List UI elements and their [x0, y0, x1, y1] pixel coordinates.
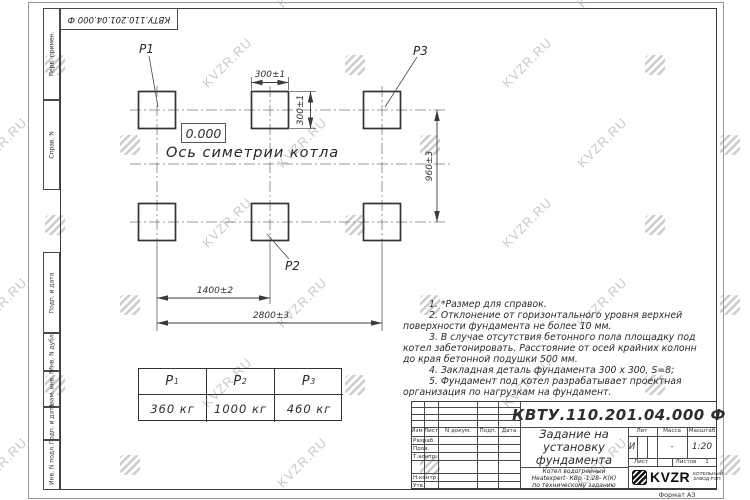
tb-col-ndokum: N докум.: [445, 428, 471, 434]
pad-label-p1: P1: [139, 42, 154, 56]
tb-lit-label: Лит: [636, 428, 647, 434]
kvzr-logo-caption: КОТЕЛЬНЫЙ ЗАВОД РЭП: [693, 472, 723, 483]
tb-row-prov: Пров.: [413, 446, 429, 452]
tb-masshtab-label: Масштаб: [689, 428, 716, 434]
tb-col-izm: Изм: [411, 428, 422, 434]
tb-doc-title: Задание на установку фундамента: [521, 428, 627, 466]
loads-value-p2: 1000 кг: [207, 395, 275, 422]
dim-total-span: 2800±3: [253, 311, 289, 321]
tb-doc-number: КВТУ.110.201.04.000 Ф: [521, 402, 717, 427]
technical-drawing-sheet: KVZR.RUKVZR.RUKVZR.RUKVZR.RUKVZR.RUKVZR.…: [0, 0, 750, 500]
tb-subtitle-line: по техническому заданию: [521, 482, 627, 489]
note-line: 1. *Размер для справок.: [403, 299, 701, 310]
note-line: 2. Отклонение от горизонтального уровня …: [403, 310, 701, 332]
loads-header-p3: P3: [275, 369, 343, 395]
foundation-pads: [139, 92, 401, 241]
tb-listov-label: Листов: [676, 459, 697, 465]
tb-subtitle-line: Heatexpert- КВр -1,28- К(К): [521, 475, 627, 482]
tb-massa-value: -: [670, 442, 673, 452]
tb-massa-label: Масса: [663, 428, 681, 434]
tb-row-razrab: Разраб.: [413, 438, 435, 444]
company-logo: KVZR КОТЕЛЬНЫЙ ЗАВОД РЭП: [632, 469, 723, 485]
note-line: 3. В случае отсутствия бетонного пола пл…: [403, 332, 701, 365]
dim-col-spacing: 1400±2: [197, 286, 233, 296]
note-line: 5. Фундамент под котел разрабатывает про…: [403, 376, 701, 398]
tb-masshtab-value: 1:20: [692, 442, 712, 452]
loads-header-p2: P2: [207, 369, 275, 395]
tb-row-nkontr: Н.контр.: [413, 475, 438, 481]
loads-value-p3: 460 кг: [275, 395, 343, 422]
tb-subtitle: Котел водогрейный Heatexpert- КВр -1,28-…: [521, 468, 627, 489]
tb-row-tkontr: Т.контр.: [413, 454, 437, 460]
loads-table: P1 P2 P3 360 кг 1000 кг 460 кг: [138, 368, 342, 421]
tb-listov-value: 1: [705, 459, 709, 465]
boiler-axis-label: Ось симетрии котла: [166, 145, 339, 161]
tb-row-utv: Утв.: [413, 483, 425, 489]
pad-label-p2: P2: [285, 259, 300, 273]
technical-notes: 1. *Размер для справок. 2. Отклонение от…: [403, 299, 701, 398]
tb-col-list: Лист: [424, 428, 438, 434]
tb-lit-value: И: [629, 442, 635, 452]
center-lines: [130, 86, 452, 246]
pad-label-p3: P3: [413, 44, 428, 58]
level-mark: 0.000: [181, 123, 226, 143]
tb-subtitle-line: Котел водогрейный: [521, 468, 627, 475]
loads-header-p1: P1: [139, 369, 207, 395]
note-line: 4. Закладная деталь фундамента 300 x 300…: [403, 365, 701, 376]
tb-list-label: Лист: [634, 459, 648, 465]
dim-pad-width: 300±1: [255, 70, 285, 80]
kvzr-logo-icon: [632, 470, 647, 485]
loads-value-p1: 360 кг: [139, 395, 207, 422]
dim-row-spacing: 960±3: [425, 151, 435, 181]
dim-pad-height: 300±1: [296, 95, 306, 125]
tb-col-podp: Подп.: [480, 428, 497, 434]
kvzr-logo-text: KVZR: [650, 469, 690, 485]
tb-col-data: Дата: [502, 428, 516, 434]
format-label: Формат А3: [637, 491, 717, 499]
